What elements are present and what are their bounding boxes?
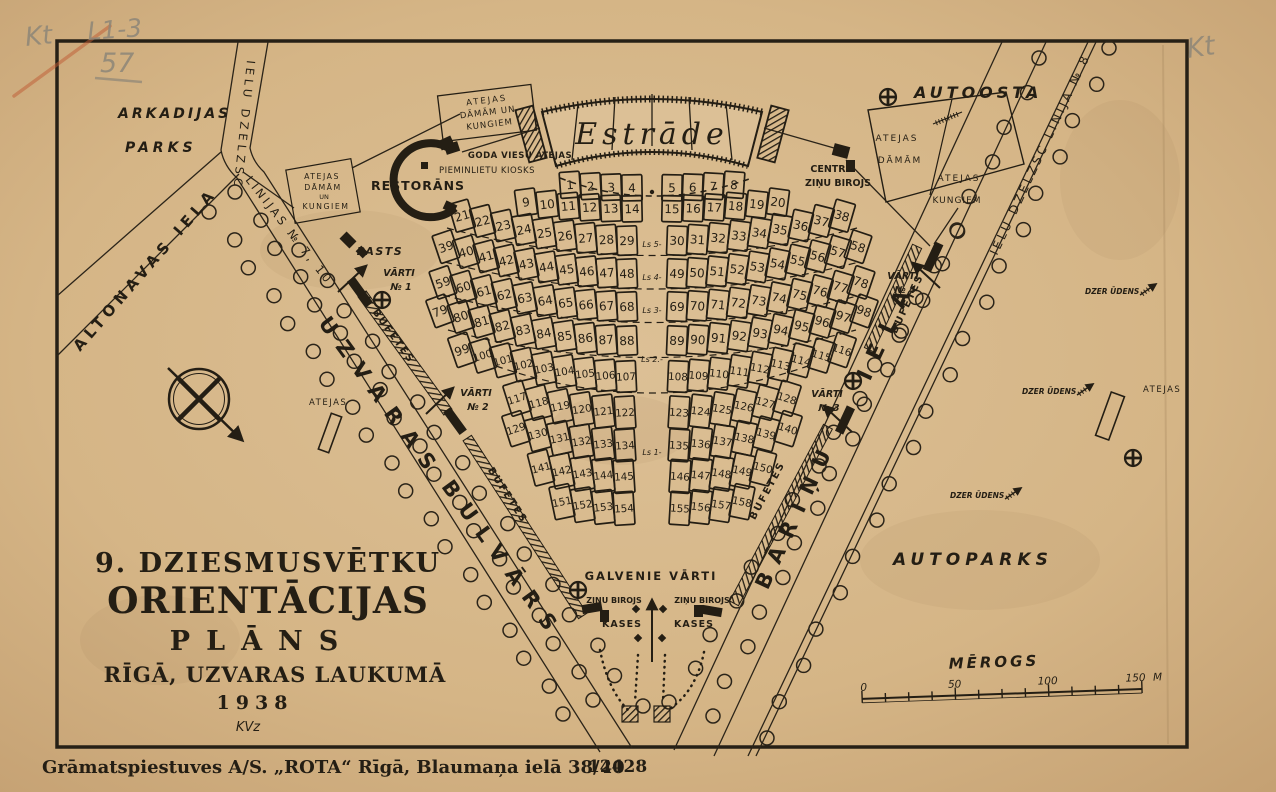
scale-unit: M bbox=[1153, 671, 1162, 683]
seating-block-number: 68 bbox=[619, 300, 635, 315]
seating-block-number: 54 bbox=[769, 256, 787, 273]
seating-block-number: 53 bbox=[749, 259, 766, 275]
toilet-ladies-line2: DĀMĀM bbox=[878, 155, 923, 166]
seating-block-number: 70 bbox=[689, 299, 705, 314]
seating-block-number: 133 bbox=[593, 437, 614, 451]
price-ls2: Ls 2.- bbox=[641, 355, 663, 364]
seating-block-number: 88 bbox=[619, 334, 635, 349]
seating-block-number: 73 bbox=[750, 293, 767, 309]
seating-block-number: 122 bbox=[615, 407, 636, 420]
seating-block-number: 106 bbox=[595, 369, 616, 383]
kiosk-label: PIEMINLIETU KIOSKS bbox=[439, 166, 535, 176]
seating-block-number: 52 bbox=[729, 262, 746, 278]
news-center-line2: ZIŅU BIROJS bbox=[805, 178, 871, 189]
seating-block-number: 20 bbox=[769, 194, 786, 210]
seating-block-number: 87 bbox=[598, 332, 614, 347]
gate2-word: VĀRTI bbox=[460, 388, 492, 399]
map-canvas: Kt L1-3 57 Kt Estrāde bbox=[0, 0, 1276, 792]
seating-block-number: 27 bbox=[578, 231, 595, 246]
gate-booth-right bbox=[654, 706, 670, 722]
scale-tick-150: 150 bbox=[1125, 672, 1146, 685]
seating-block-number: 14 bbox=[624, 202, 640, 216]
seating-block-number: 29 bbox=[619, 234, 635, 249]
water3-label: DZER ŪDENS bbox=[950, 491, 1004, 500]
seating-block-number: 2 bbox=[587, 179, 595, 193]
autoosta-label: AUTOOSTA bbox=[912, 83, 1042, 102]
seating-block-number: 32 bbox=[710, 231, 727, 246]
seating-block-number: 10 bbox=[539, 197, 556, 213]
gate-booth-left bbox=[622, 706, 638, 722]
seating-block-number: 33 bbox=[730, 228, 747, 244]
seating-block-number: 13 bbox=[603, 201, 619, 216]
park-toilet-line4: KUNGIEM bbox=[303, 202, 350, 211]
water1-label: DZER ŪDENS bbox=[1085, 287, 1139, 296]
toilet-gents-line2: KUNGIEM bbox=[932, 196, 981, 206]
postcard-scan: Kt L1-3 57 Kt Estrāde bbox=[0, 0, 1276, 792]
scale-tick-50: 50 bbox=[948, 678, 962, 690]
seating-block-number: 123 bbox=[669, 407, 690, 420]
seating-block-number: 6 bbox=[689, 180, 697, 194]
toilet-gents-line1: ATEJAS bbox=[937, 174, 980, 184]
price-ls5: Ls 5- bbox=[642, 240, 661, 249]
seating-block-number: 7 bbox=[709, 179, 717, 193]
seating-block-number: 124 bbox=[690, 405, 711, 419]
title-line-1: 9. DZIESMUSVĒTKU bbox=[95, 546, 441, 579]
price-ls1: Ls 1- bbox=[642, 448, 661, 457]
seating-block-number: 31 bbox=[689, 232, 705, 247]
seating-block-number: 48 bbox=[619, 267, 635, 282]
stage-label: Estrāde bbox=[574, 117, 729, 152]
seating-block-number: 12 bbox=[582, 200, 598, 215]
seating-block-number: 147 bbox=[690, 469, 711, 483]
handwriting-kt-left: Kt bbox=[24, 20, 55, 53]
seating-block-number: 69 bbox=[669, 300, 685, 315]
seating-block-number: 93 bbox=[751, 325, 769, 342]
seating-block-number: 45 bbox=[558, 262, 575, 278]
imprint-number: 12428 bbox=[588, 757, 647, 777]
seating-block-number: 89 bbox=[669, 334, 685, 349]
park-label-2: PARKS bbox=[125, 140, 197, 156]
toilets-right-label: ATEJAS bbox=[1143, 385, 1181, 395]
scale-tick-0: 0 bbox=[860, 682, 867, 694]
seating-block-number: 86 bbox=[577, 331, 594, 347]
seating-block-number: 51 bbox=[709, 264, 726, 279]
toilet-ladies-line1: ATEJAS bbox=[875, 134, 918, 144]
seating-block-number: 136 bbox=[690, 437, 711, 451]
handwriting-number: 57 bbox=[100, 48, 134, 79]
seating-block-number: 16 bbox=[685, 201, 701, 216]
seating-block-number: 47 bbox=[599, 265, 615, 280]
signature-monogram: KVz bbox=[236, 720, 261, 735]
seating-block-number: 156 bbox=[690, 501, 711, 515]
park-toilet-line3: UN bbox=[319, 193, 329, 201]
seating-block-number: 154 bbox=[614, 502, 635, 515]
seating-block-number: 85 bbox=[556, 328, 573, 344]
title-line-2: ORIENTĀCIJAS bbox=[107, 580, 429, 622]
seating-block-number: 109 bbox=[688, 369, 709, 383]
seating-block-number: 34 bbox=[751, 225, 768, 241]
seating-block-number: 90 bbox=[690, 332, 706, 347]
water2-label: DZER ŪDENS bbox=[1022, 387, 1076, 396]
seating-block-number: 26 bbox=[557, 228, 574, 244]
seating-block-number: 11 bbox=[560, 199, 576, 214]
seating-block-number: 145 bbox=[614, 471, 635, 484]
seating-block-number: 46 bbox=[579, 264, 596, 279]
seating-block-number: 110 bbox=[708, 367, 729, 381]
seating-block-number: 91 bbox=[710, 331, 727, 347]
main-gate-label: GALVENIE VĀRTI bbox=[585, 569, 718, 583]
price-ls3: Ls 3- bbox=[642, 306, 661, 315]
autoparks-label: AUTOPARKS bbox=[891, 550, 1053, 570]
seating-block-number: 65 bbox=[557, 295, 574, 311]
seating-block-number: 74 bbox=[770, 290, 788, 307]
seating-block-number: 3 bbox=[607, 180, 615, 194]
seating-block-number: 135 bbox=[669, 439, 690, 452]
printer-imprint: Grāmatspiestuves A/S. „ROTA“ Rīgā, Blaum… bbox=[42, 757, 625, 778]
gate1-number: № 1 bbox=[389, 282, 411, 293]
handwriting-catalog: L1-3 bbox=[86, 13, 143, 46]
seating-block-number: 108 bbox=[668, 371, 688, 384]
seating-block-number: 72 bbox=[730, 295, 747, 311]
seating-block-number: 64 bbox=[537, 293, 554, 309]
handwriting-kt-right: Kt bbox=[1185, 30, 1219, 65]
gate3-word: VĀRTI bbox=[811, 389, 843, 400]
seating-block-number: 50 bbox=[689, 265, 705, 280]
seating-block-number: 5 bbox=[668, 181, 676, 195]
news-center-line1: CENTR bbox=[810, 164, 846, 175]
seating-block-number: 30 bbox=[669, 234, 685, 249]
seating-block-number: 19 bbox=[748, 197, 765, 213]
title-line-5: 1938 bbox=[217, 692, 294, 714]
news-right-label: ZIŅU BIROJS bbox=[674, 596, 730, 605]
seating-block-number: 4 bbox=[628, 181, 636, 195]
post-label: PASTS bbox=[357, 245, 403, 258]
park-label-1: ARKADIJAS bbox=[117, 106, 231, 122]
seating-block-number: 92 bbox=[731, 328, 748, 344]
park-toilet-line1: ATEJAS bbox=[304, 172, 340, 181]
seating-block-number: 144 bbox=[593, 469, 614, 483]
seating-block-number: 8 bbox=[730, 178, 739, 193]
seating-block-number: 155 bbox=[670, 502, 691, 515]
seating-block-number: 25 bbox=[536, 225, 553, 241]
seating-block-number: 105 bbox=[575, 367, 596, 381]
vip-toilets-label: GODA VIESU ATEJAS bbox=[468, 151, 572, 161]
seating-block-number: 28 bbox=[598, 232, 614, 247]
restaurant-label: RESTORĀNS bbox=[371, 178, 465, 193]
park-toilet-line2: DĀMĀM bbox=[304, 183, 342, 192]
seating-block-number: 49 bbox=[669, 267, 685, 282]
seating-block-number: 44 bbox=[538, 259, 555, 275]
seating-block-number: 63 bbox=[516, 290, 534, 307]
seating-block-number: 67 bbox=[599, 299, 615, 314]
kases-right-label: KASES bbox=[674, 619, 714, 630]
title-line-4: RĪGĀ, UZVARAS LAUKUMĀ bbox=[104, 662, 447, 687]
seating-block-number: 1 bbox=[566, 178, 575, 193]
price-ls4: Ls 4- bbox=[642, 273, 661, 282]
seating-block-number: 121 bbox=[593, 405, 614, 419]
cross-marker-stage bbox=[880, 89, 896, 105]
seating-block-number: 66 bbox=[578, 297, 595, 312]
seating-block-number: 84 bbox=[535, 325, 553, 342]
gate1-word: VĀRTI bbox=[383, 268, 415, 279]
kases-left-label: KASES bbox=[602, 619, 642, 630]
seating-block-number: 146 bbox=[670, 471, 691, 484]
cross-marker-toilets bbox=[1125, 450, 1141, 466]
scale-tick-100: 100 bbox=[1037, 675, 1058, 688]
seating-block-number: 35 bbox=[771, 221, 789, 238]
seating-block-number: 43 bbox=[518, 256, 536, 273]
seating-block-number: 153 bbox=[593, 501, 614, 515]
seating-block-number: 134 bbox=[615, 439, 636, 452]
seating-block-number: 24 bbox=[515, 221, 533, 238]
seating-block-number: 107 bbox=[616, 371, 636, 384]
title-line-3: PLĀNS bbox=[170, 624, 354, 657]
kiosk-structure bbox=[421, 162, 428, 169]
seating-block-number: 15 bbox=[664, 202, 680, 216]
seating-block-number: 71 bbox=[710, 297, 727, 312]
gate3-number: № 3 bbox=[817, 403, 840, 414]
gate2-number: № 2 bbox=[466, 402, 489, 413]
seating-block-number: 17 bbox=[706, 200, 722, 215]
toilets-left-label: ATEJAS bbox=[309, 398, 347, 408]
seating-block-number: 18 bbox=[727, 199, 743, 214]
